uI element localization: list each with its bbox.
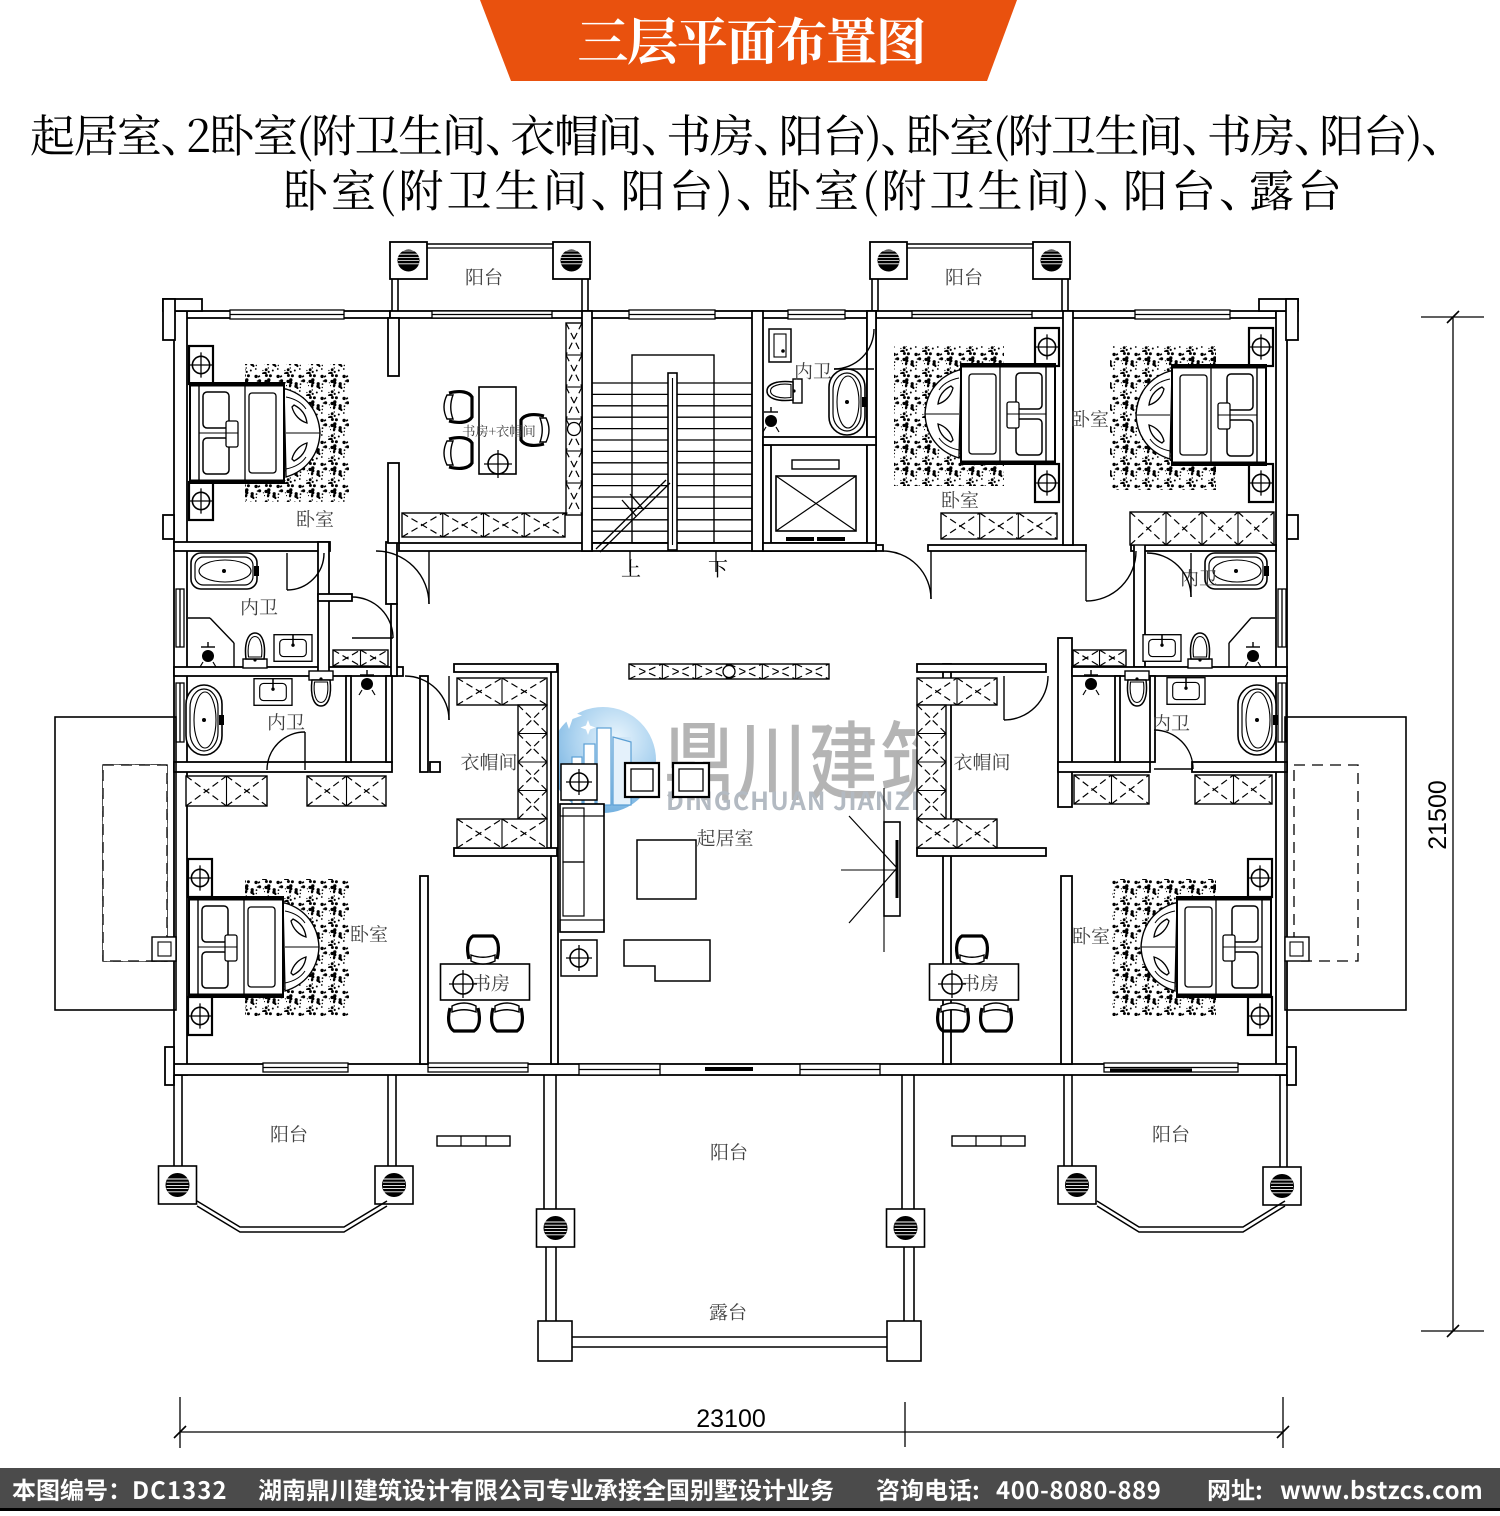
svg-text:23100: 23100: [696, 1405, 766, 1433]
svg-text:21500: 21500: [1424, 780, 1452, 850]
